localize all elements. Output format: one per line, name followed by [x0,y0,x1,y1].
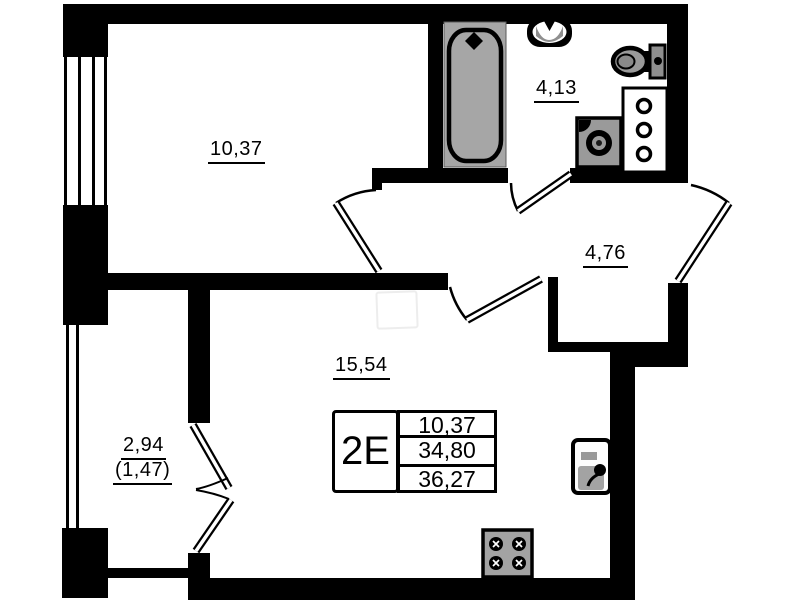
apartment-info-table: 2E 10,37 34,80 36,27 [332,410,497,493]
wall-segment [610,352,688,367]
wall-segment [63,205,108,325]
area-label-living-kitchen: 15,54 [333,355,390,380]
wall-segment [108,568,188,578]
washing-machine-icon [577,118,621,167]
area-label-bedroom: 10,37 [208,139,265,164]
area-label-hallway: 4,76 [583,243,628,268]
balcony-glazing-icon [66,325,79,528]
bathtub-icon [444,22,506,167]
area-label-balcony-reduced: (1,47) [113,460,172,485]
door-swing-line [196,490,229,499]
wall-segment [667,4,688,183]
window-icon [64,57,107,205]
wall-segment [610,352,635,578]
area-label-bathroom: 4,13 [534,78,579,103]
wall-segment [63,273,448,290]
door-swing-arc [511,183,518,211]
door-bathroom [511,174,571,211]
door-swing-arc [450,287,467,320]
washbasin-icon [527,18,572,47]
wall-segment [372,168,508,183]
door-leaf [336,203,379,271]
toilet-icon [613,45,665,78]
wall-segment [548,342,688,352]
wall-segment [428,24,443,170]
apartment-type-label: 2E [332,410,399,493]
wall-segment [188,578,635,600]
vent-shaft-icon [623,88,667,172]
apartment-area-values: 10,37 34,80 36,27 [397,410,497,493]
wall-segment [548,277,558,342]
kitchen-sink-icon [573,440,610,493]
door-bedroom [336,190,379,271]
door-balcony-french [193,425,231,551]
door-swing-arc [691,185,729,203]
door-swing-arc [336,190,376,203]
wall-segment [188,553,210,578]
door-leaf [518,174,571,211]
living-area-value: 10,37 [397,410,497,438]
faint-watermark [375,290,418,329]
door-entrance [678,185,729,281]
wall-segment [62,528,108,598]
wall-segment [63,24,108,57]
door-leaf [193,425,229,488]
door-leaf [467,279,541,320]
wall-segment [63,4,688,24]
wall-segment [188,290,210,423]
area-label-balcony: 2,94 [121,435,166,460]
total-area-value: 36,27 [397,464,497,493]
door-leaf [196,500,231,551]
apartment-area-value: 34,80 [397,435,497,467]
door-living-room [450,279,541,320]
wall-segment [668,283,688,352]
stove-icon [483,530,532,577]
door-leaf [678,203,729,281]
floor-plan: 10,37 4,13 4,76 15,54 2,94 (1,47) 2E 10,… [0,0,799,600]
